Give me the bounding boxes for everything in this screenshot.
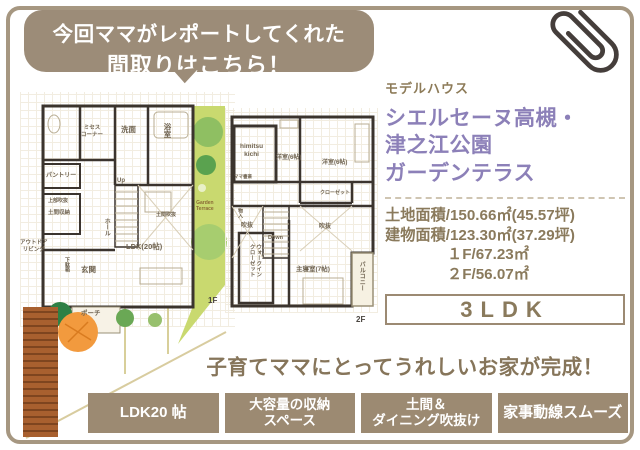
area-specs: 土地面積/150.66㎡(45.57坪)建物面積/123.30㎡(37.29坪)… (385, 206, 625, 285)
room-label: 2F (356, 315, 365, 325)
room-label: 洗面 (121, 125, 136, 134)
bed (355, 124, 369, 162)
headline-bubble: 今回ママがレポートしてくれた 間取りはこちら！ (24, 10, 374, 72)
room-label: 洋室(6帖) (276, 155, 301, 162)
floorplan-1f: ミセス コーナー洗面浴室パントリー上部吹抜土間収納UpホールLDK(20帖)土間… (20, 92, 235, 440)
stairs-1f (115, 185, 138, 247)
room-label: Down (268, 235, 283, 242)
room-label: LDK(20帖) (126, 242, 162, 251)
floorplan-2f: himitsu kichi洋室(6帖)洋室(6帖)ママ書斎クローゼット吹抜Dow… (225, 108, 378, 330)
room-label: ホール (102, 218, 109, 236)
feature-badge: 大容量の収納スペース (225, 393, 356, 433)
catchphrase: 子育てママにとってうれしいお家が完成！ (180, 350, 630, 380)
room-label: パントリー (46, 173, 76, 180)
room-label: ポーチ (81, 310, 101, 318)
shrub (198, 184, 206, 192)
feature-badge: 家事動線スムーズ (498, 393, 629, 433)
stair-steps (115, 192, 138, 241)
room-label: 洋室(6帖) (322, 160, 347, 167)
room-label: 玄関 (81, 265, 96, 274)
room-label: Up (117, 178, 125, 185)
room-label: Garden Terrace (196, 200, 214, 212)
bubble-tail (173, 68, 200, 85)
room-label: 上部吹抜 (48, 198, 68, 204)
room-label: 土間収納 (48, 210, 70, 217)
bed-master (303, 278, 343, 304)
paperclip-icon (542, 0, 628, 80)
toilet (48, 115, 60, 133)
model-house-name-line: ガーデンテラス (385, 160, 625, 187)
wood-deck (23, 307, 58, 437)
room-label: 吹抜 (319, 224, 331, 231)
tree (196, 155, 216, 175)
feature-badges: LDK20 帖大容量の収納スペース土間＆ダイニング吹抜け家事動線スムーズ (88, 393, 628, 433)
separator-line (385, 197, 625, 199)
model-house-name-line: シエルセーヌ高槻・ (385, 105, 625, 132)
area-spec-line: ２F/56.07㎡ (385, 265, 625, 285)
room-label: 下駄箱 (64, 257, 70, 272)
room-label: 1F (208, 296, 217, 306)
tree (191, 224, 227, 260)
room-label: 吹抜 (241, 223, 253, 230)
tree (193, 117, 223, 147)
room-label: 土間吹抜 (156, 212, 176, 218)
room-label: バルコニー (357, 261, 364, 291)
room-label: ママ書斎 (234, 174, 252, 179)
room-label: 主寝室(7帖) (296, 266, 330, 274)
area-spec-line: 建物面積/123.30㎡(37.29坪) (385, 226, 625, 246)
room-label: himitsu kichi (240, 143, 263, 159)
headline-line1: 今回ママがレポートしてくれた (24, 17, 374, 47)
room-label: ウォークイン クローゼット (248, 244, 261, 277)
plan-type-box: 3LDK (385, 294, 625, 325)
model-house-name-line: 津之江公園 (385, 132, 625, 159)
model-house-name: シエルセーヌ高槻・津之江公園ガーデンテラス (385, 105, 625, 187)
tree (116, 309, 134, 327)
room-label: 浴室 (163, 123, 172, 138)
model-house-tag: モデルハウス (385, 78, 625, 97)
feature-badge: LDK20 帖 (88, 393, 219, 433)
room-label: クローゼット (320, 190, 350, 196)
room-label: 物入 (237, 208, 243, 218)
floorplan-2f-drawing (225, 108, 378, 330)
room-label: ミセス コーナー (81, 125, 103, 138)
model-house-info: モデルハウス シエルセーヌ高槻・津之江公園ガーデンテラス 土地面積/150.66… (385, 78, 625, 325)
desk (280, 120, 298, 128)
flyer-panel: 今回ママがレポートしてくれた 間取りはこちら！ (0, 0, 640, 450)
tree (148, 313, 162, 327)
area-spec-line: 土地面積/150.66㎡(45.57坪) (385, 206, 625, 226)
room-label: アウトドア リビング (20, 240, 48, 253)
sofa (140, 268, 182, 284)
area-spec-line: １F/67.23㎡ (385, 245, 625, 265)
feature-badge: 土間＆ダイニング吹抜け (361, 393, 492, 433)
